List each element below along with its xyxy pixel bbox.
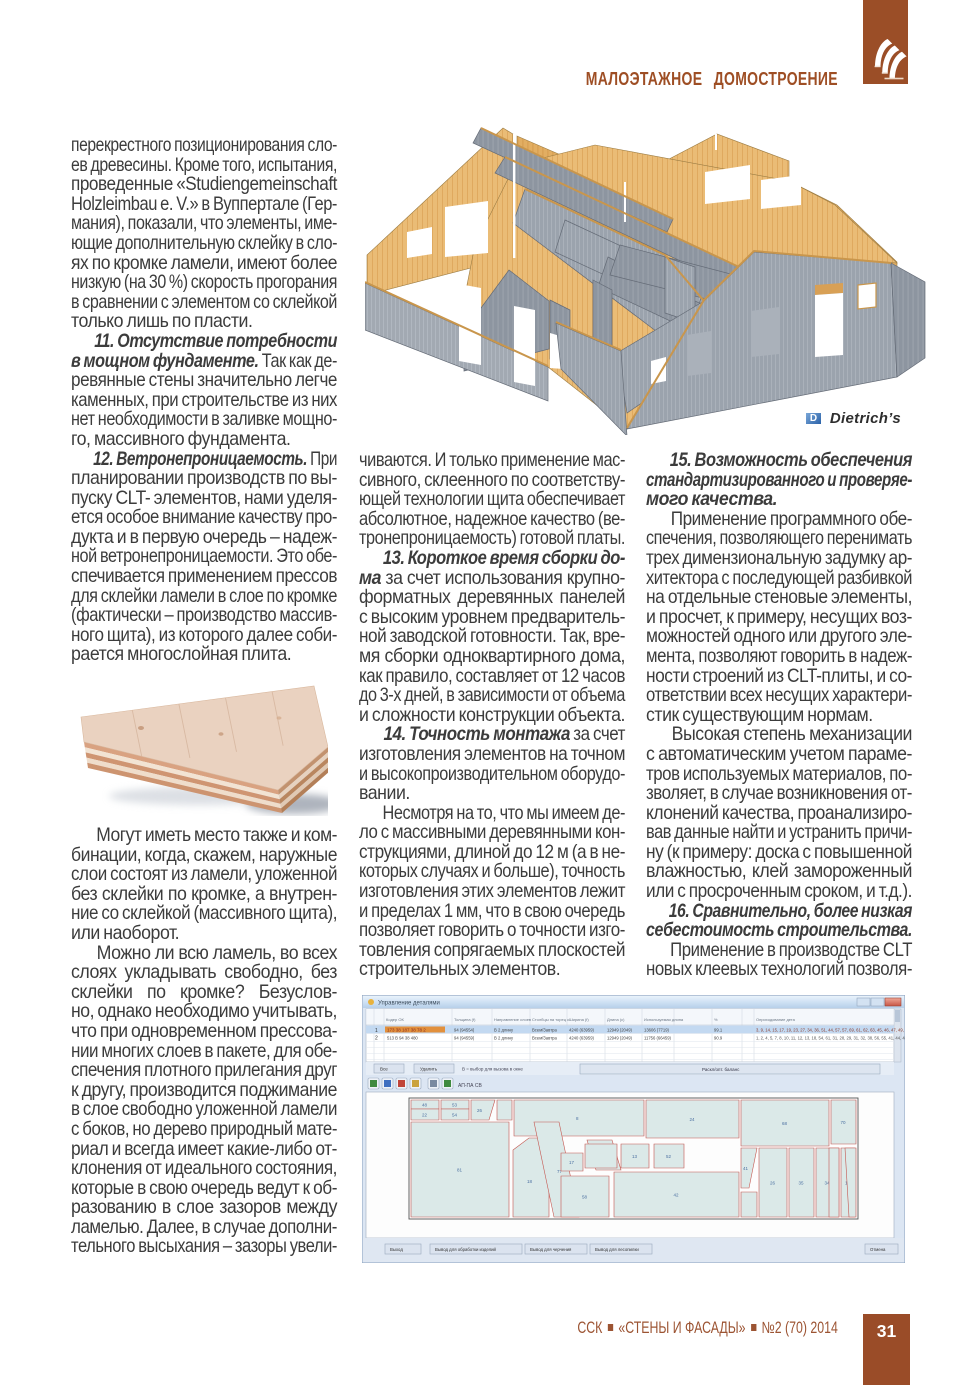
svg-text:11756 (66459): 11756 (66459) xyxy=(644,1036,672,1041)
svg-text:90.9: 90.9 xyxy=(714,1036,723,1041)
svg-text:Столбцы на торец с: Столбцы на торец с xyxy=(532,1017,569,1022)
svg-text:Вывод для лесопилки: Вывод для лесопилки xyxy=(595,1247,639,1252)
svg-text:42: 42 xyxy=(674,1193,680,1198)
svg-text:70: 70 xyxy=(841,1120,847,1125)
svg-text:24: 24 xyxy=(690,1117,696,1122)
svg-text:3, 9, 14, 15, 17, 19, 23, 27,: 3, 9, 14, 15, 17, 19, 23, 27, 34, 36, 51… xyxy=(756,1028,905,1033)
svg-text:Длина (c): Длина (c) xyxy=(607,1017,625,1022)
svg-text:Кодер ОК: Кодер ОК xyxy=(386,1017,404,1022)
svg-text:12949 (2049): 12949 (2049) xyxy=(607,1028,633,1033)
svg-text:13: 13 xyxy=(632,1154,638,1159)
svg-text:58: 58 xyxy=(582,1195,588,1200)
svg-text:Выход: Выход xyxy=(390,1247,403,1252)
svg-text:4240 (63959): 4240 (63959) xyxy=(569,1036,595,1041)
svg-text:1, 2, 4, 5, 7, 8, 10, 11, 12,: 1, 2, 4, 5, 7, 8, 10, 11, 12, 13, 18, 54… xyxy=(756,1036,905,1041)
svg-text:Направление слоев: Направление слоев xyxy=(494,1017,531,1022)
svg-text:Оприходование дета: Оприходование дета xyxy=(756,1017,796,1022)
svg-text:17: 17 xyxy=(569,1160,575,1165)
svg-text:173 38 187 38 78 2: 173 38 187 38 78 2 xyxy=(387,1028,426,1033)
svg-text:4240 (63959): 4240 (63959) xyxy=(569,1028,595,1033)
svg-text:Все: Все xyxy=(380,1067,388,1072)
svg-text:%: % xyxy=(714,1017,718,1022)
svg-text:АП-ПА СВ: АП-ПА СВ xyxy=(458,1083,482,1089)
svg-text:Всем/Завтра: Всем/Завтра xyxy=(532,1036,557,1041)
svg-text:53: 53 xyxy=(452,1103,458,1108)
svg-text:513 В 94 38 480: 513 В 94 38 480 xyxy=(387,1036,418,1041)
svg-text:В = выбор для вызова в окне: В = выбор для вызова в окне xyxy=(462,1067,523,1072)
svg-text:В 2 длину: В 2 длину xyxy=(494,1036,514,1041)
svg-text:1: 1 xyxy=(375,1028,378,1034)
svg-text:26: 26 xyxy=(770,1181,776,1186)
svg-text:26: 26 xyxy=(477,1108,483,1113)
svg-text:Используемая длина: Используемая длина xyxy=(644,1017,684,1022)
svg-text:Толщина (f): Толщина (f) xyxy=(454,1017,476,1022)
svg-text:18: 18 xyxy=(527,1179,533,1184)
svg-text:41: 41 xyxy=(743,1166,749,1171)
svg-text:Вывод для обработки изделий: Вывод для обработки изделий xyxy=(435,1247,496,1252)
svg-text:52: 52 xyxy=(666,1154,672,1159)
svg-text:Вывод для черчения: Вывод для черчения xyxy=(530,1247,572,1252)
svg-text:Раскл/опт. баланс: Раскл/опт. баланс xyxy=(702,1067,740,1072)
svg-text:48: 48 xyxy=(422,1103,428,1108)
svg-text:35: 35 xyxy=(799,1181,805,1186)
svg-text:54: 54 xyxy=(452,1113,458,1118)
svg-text:81: 81 xyxy=(457,1168,463,1173)
svg-text:13606 (7719): 13606 (7719) xyxy=(644,1028,670,1033)
svg-text:Отмена: Отмена xyxy=(870,1247,886,1252)
svg-text:Управление деталями: Управление деталями xyxy=(378,1001,440,1007)
svg-text:Удалить: Удалить xyxy=(420,1067,438,1072)
svg-text:99.1: 99.1 xyxy=(714,1028,723,1033)
svg-text:22: 22 xyxy=(422,1113,428,1118)
svg-text:12949 (2049): 12949 (2049) xyxy=(607,1036,633,1041)
svg-text:68: 68 xyxy=(782,1121,788,1126)
svg-text:Ширина (f): Ширина (f) xyxy=(569,1017,589,1022)
svg-text:94 (94554): 94 (94554) xyxy=(454,1028,475,1033)
svg-text:В 2 длину: В 2 длину xyxy=(494,1028,514,1033)
svg-text:2: 2 xyxy=(375,1036,378,1042)
svg-text:94 (94559): 94 (94559) xyxy=(454,1036,475,1041)
svg-text:Всем/Завтра: Всем/Завтра xyxy=(532,1028,557,1033)
